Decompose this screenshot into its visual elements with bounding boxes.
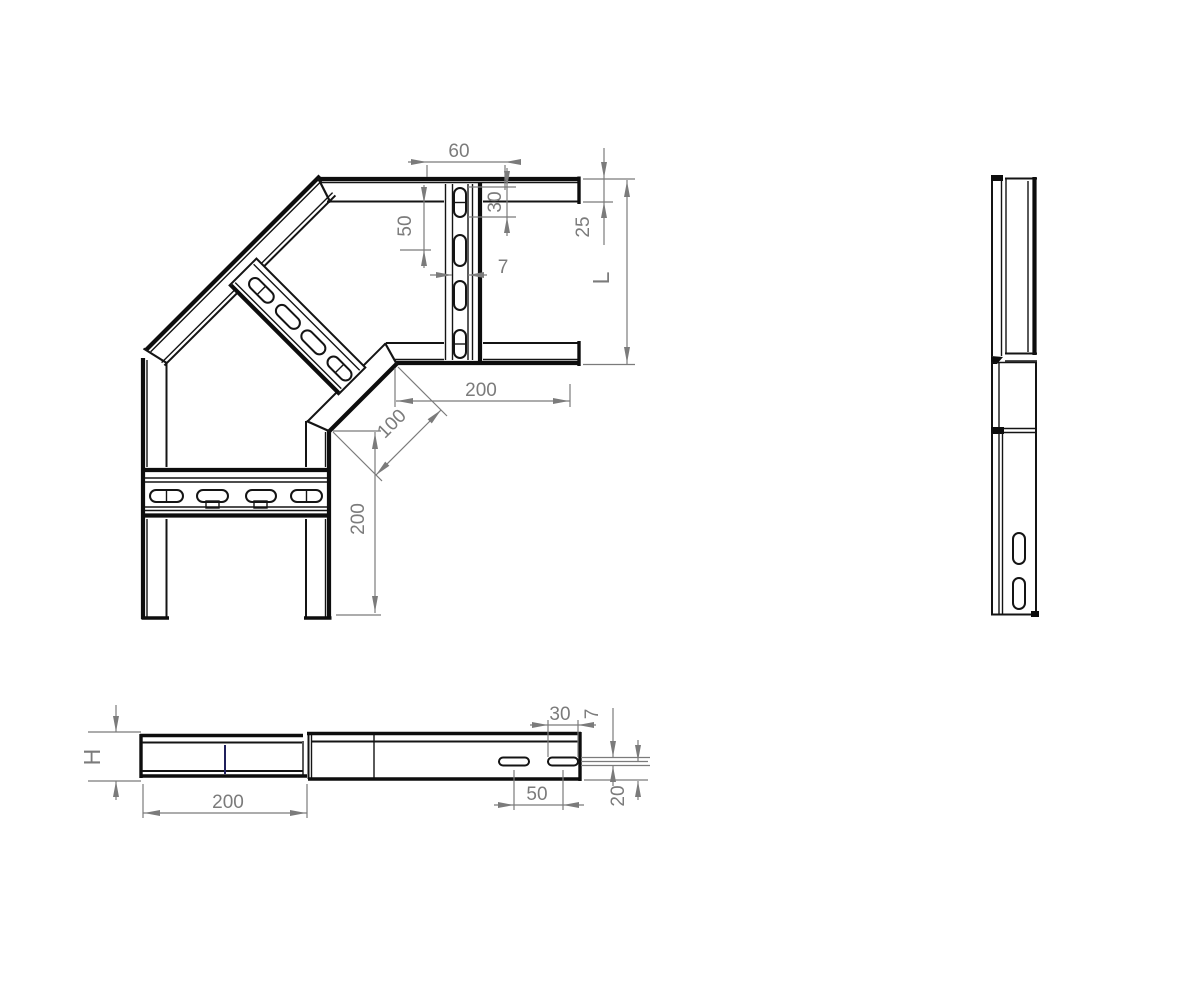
dim-label: 200	[212, 792, 244, 813]
dim-label: 20	[608, 785, 629, 806]
dim-rail-height-H: H	[79, 705, 141, 800]
dim-label: 30	[549, 704, 570, 725]
front-splice-joint	[309, 733, 375, 779]
side-view	[991, 175, 1039, 617]
dim-label: 7	[498, 257, 509, 278]
technical-drawing-canvas: 60 30 50 7	[0, 0, 1200, 1000]
front-view: H 200 30	[79, 704, 650, 818]
dim-slot-pitch-50: 50	[494, 770, 584, 810]
plan-dimensions: 60 30 50 7	[333, 141, 635, 615]
dim-label: 50	[395, 215, 416, 236]
dim-label: 60	[448, 141, 469, 162]
dim-label: 50	[526, 784, 547, 805]
plan-rail-outer-lines	[142, 177, 581, 620]
dim-label: 25	[573, 216, 594, 237]
plan-rung-diagonal	[230, 259, 366, 395]
dim-label: 7	[582, 709, 603, 720]
dim-label: 200	[348, 503, 369, 535]
plan-rung-vertical	[444, 183, 483, 361]
front-left-piece	[140, 734, 307, 778]
dim-slot-bottom-offset-20: 20	[581, 740, 648, 807]
dim-label: H	[79, 749, 105, 766]
plan-view: 60 30 50 7	[142, 141, 636, 619]
front-right-piece	[307, 732, 581, 781]
dim-ladder-width-L: L	[583, 179, 635, 365]
dim-label: 200	[465, 380, 497, 401]
dim-label: 30	[485, 191, 506, 212]
technical-drawing-page: 60 30 50 7	[0, 0, 1200, 1000]
dim-slot-pitch-50: 50	[395, 185, 431, 268]
dim-label: L	[588, 271, 614, 284]
plan-rung-horizontal	[142, 467, 331, 519]
dim-arm-length-200-vertical: 200	[333, 431, 381, 615]
dim-segment-200: 200	[143, 784, 307, 818]
dim-arm-length-200-horizontal: 200	[395, 368, 570, 407]
dim-label: 100	[373, 405, 410, 442]
